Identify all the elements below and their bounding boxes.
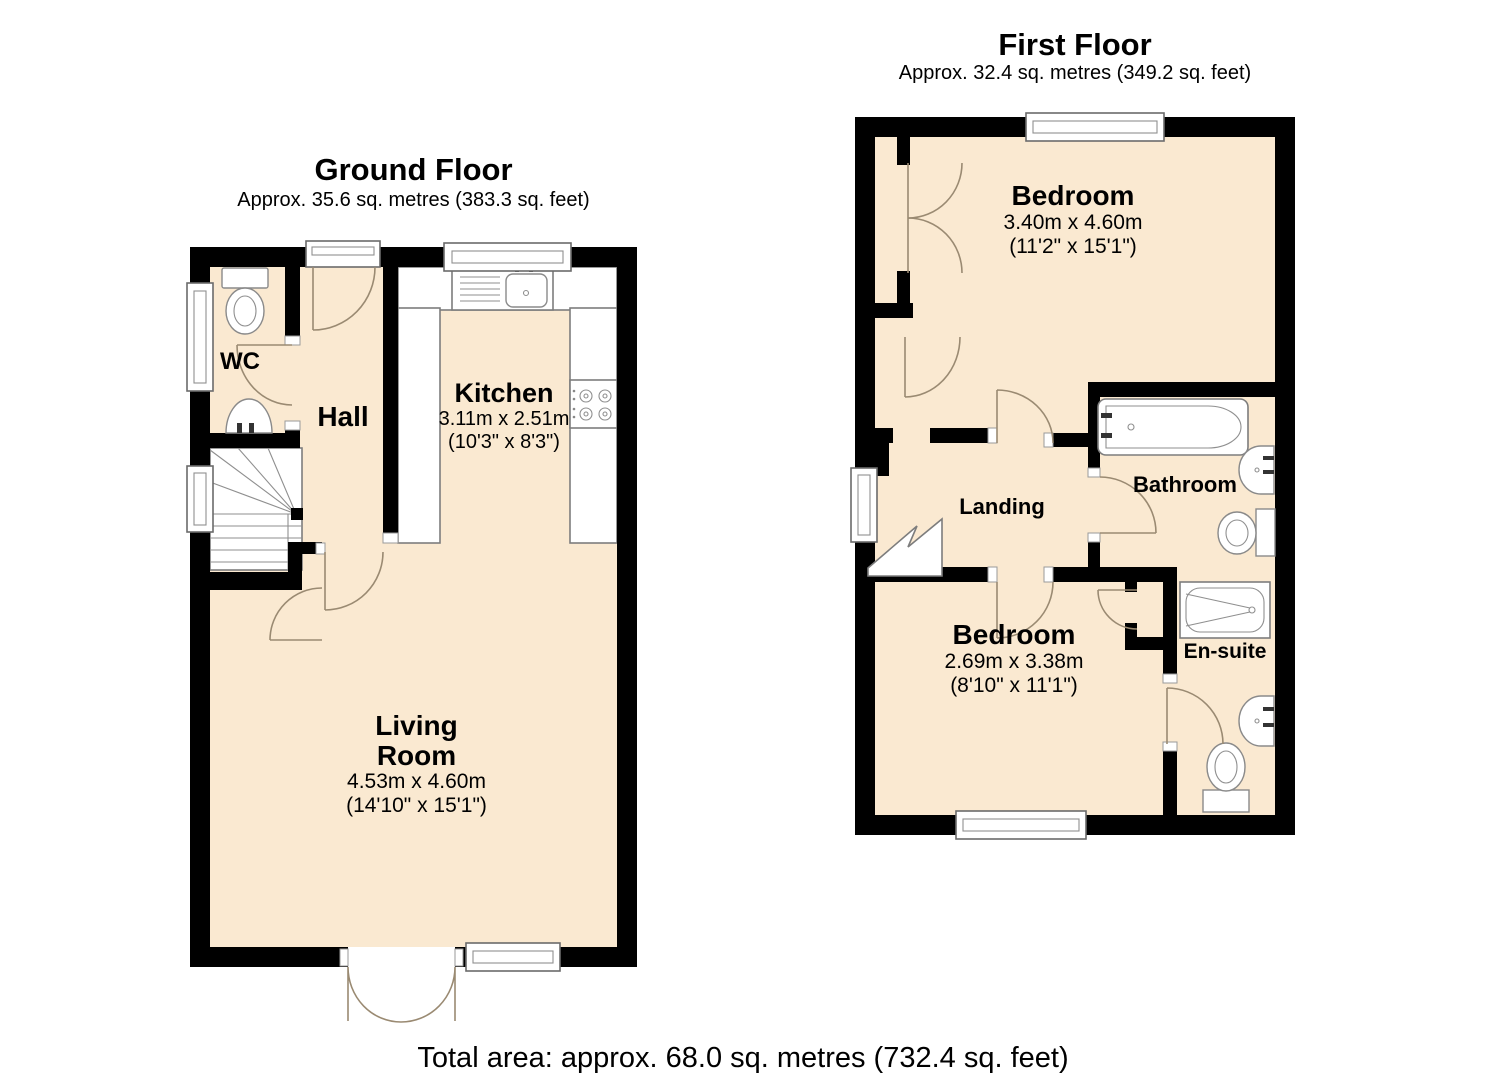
- bathroom-bath: [1098, 399, 1248, 455]
- ground-floor-subtitle: Approx. 35.6 sq. metres (383.3 sq. feet): [140, 189, 687, 212]
- living-room-label-line2: Room: [299, 741, 534, 771]
- bedroom-front-dims-metric: 3.40m x 4.60m: [953, 211, 1193, 235]
- ensuite-shower: [1180, 582, 1270, 638]
- bedroom-front-window: [1026, 113, 1164, 141]
- living-room-dims-metric: 4.53m x 4.60m: [299, 770, 534, 794]
- bedroom-back-dims-imperial: (8'10" x 11'1"): [899, 674, 1129, 698]
- bedroom-front-label: Bedroom: [953, 181, 1193, 211]
- living-room-dims-imperial: (14'10" x 15'1"): [299, 794, 534, 818]
- wc-toilet: [222, 268, 268, 334]
- first-floor-title: First Floor: [855, 27, 1295, 63]
- landing-window: [851, 468, 877, 542]
- total-area-text: Total area: approx. 68.0 sq. metres (732…: [0, 1042, 1486, 1075]
- kitchen-label-block: Kitchen 3.11m x 2.51m (10'3" x 8'3"): [414, 379, 594, 454]
- bedroom-back-label: Bedroom: [899, 620, 1129, 650]
- ensuite-label: En-suite: [1158, 640, 1292, 664]
- bedroom-front-dims-imperial: (11'2" x 15'1"): [953, 235, 1193, 259]
- floorplan-page: { "ground_floor": { "title": "Ground Flo…: [0, 0, 1486, 1080]
- kitchen-window: [444, 243, 571, 271]
- living-room-label-line1: Living: [299, 711, 534, 741]
- bedroom-back-window: [956, 811, 1086, 839]
- kitchen-dims-metric: 3.11m x 2.51m: [414, 408, 594, 431]
- bedroom-back-dims-metric: 2.69m x 3.38m: [899, 650, 1129, 674]
- first-floor-subtitle: Approx. 32.4 sq. metres (349.2 sq. feet): [805, 62, 1345, 85]
- kitchen-dims-imperial: (10'3" x 8'3"): [414, 431, 594, 454]
- bedroom-back-label-block: Bedroom 2.69m x 3.38m (8'10" x 11'1"): [899, 620, 1129, 698]
- front-door-threshold: [306, 241, 380, 267]
- hall-label: Hall: [293, 402, 393, 432]
- ensuite-toilet: [1203, 743, 1249, 812]
- ground-floor-title: Ground Floor: [190, 152, 637, 188]
- stairs-window: [187, 466, 213, 532]
- living-room-window: [466, 943, 560, 971]
- landing-label: Landing: [929, 494, 1075, 520]
- wc-label: WC: [200, 348, 280, 376]
- bathroom-label: Bathroom: [1104, 472, 1266, 498]
- living-room-label-block: Living Room 4.53m x 4.60m (14'10" x 15'1…: [299, 711, 534, 819]
- bathroom-toilet: [1218, 509, 1275, 556]
- bedroom-front-label-block: Bedroom 3.40m x 4.60m (11'2" x 15'1"): [953, 181, 1193, 259]
- kitchen-label: Kitchen: [414, 379, 594, 408]
